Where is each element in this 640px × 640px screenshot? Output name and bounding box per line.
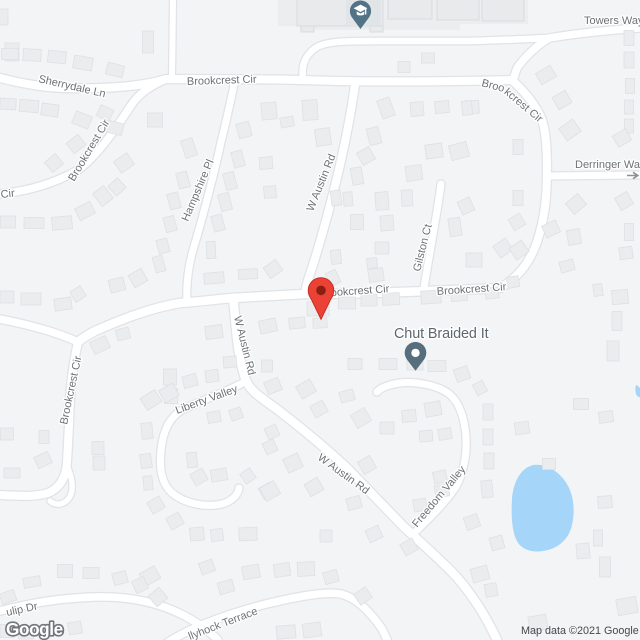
svg-text:Cir: Cir [0, 188, 16, 201]
svg-text:Map data ©2021 Google: Map data ©2021 Google [521, 625, 639, 637]
svg-text:Derringer Way: Derringer Way [575, 159, 640, 171]
svg-text:Towers Way: Towers Way [584, 15, 640, 27]
svg-text:Chut Braided It: Chut Braided It [394, 326, 489, 342]
svg-text:Brookcrest Cir: Brookcrest Cir [187, 74, 257, 88]
svg-text:Google: Google [6, 619, 63, 639]
